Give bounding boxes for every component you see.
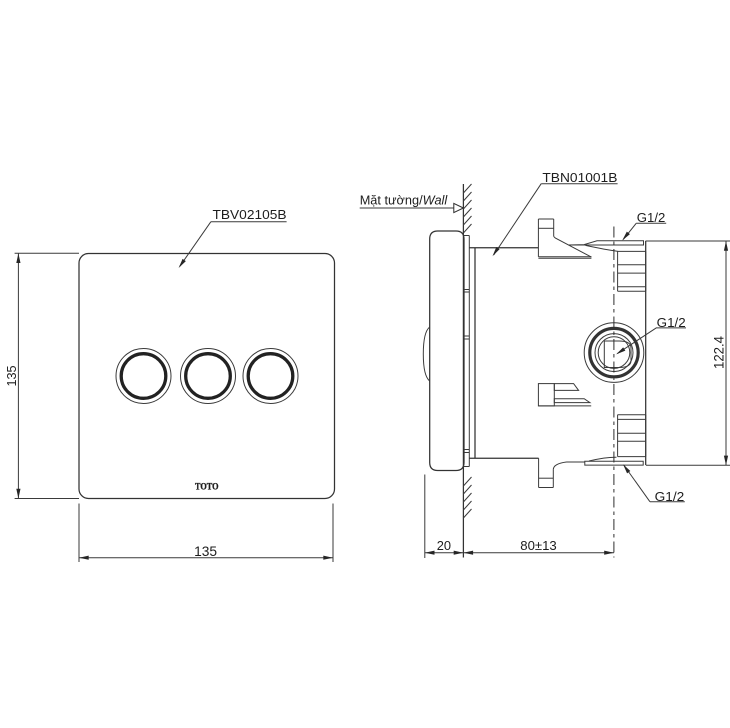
svg-text:TBN01001B: TBN01001B <box>542 170 617 185</box>
svg-text:80±13: 80±13 <box>520 538 557 553</box>
svg-text:G1/2: G1/2 <box>637 210 666 225</box>
svg-text:135: 135 <box>4 366 19 387</box>
svg-text:TBV02105B: TBV02105B <box>213 207 287 222</box>
svg-text:Mặt tường/Wall: Mặt tường/Wall <box>360 192 449 207</box>
svg-text:20: 20 <box>437 538 451 553</box>
svg-text:TOTO: TOTO <box>195 483 219 493</box>
svg-text:135: 135 <box>194 544 217 559</box>
svg-text:122.4: 122.4 <box>712 336 727 369</box>
